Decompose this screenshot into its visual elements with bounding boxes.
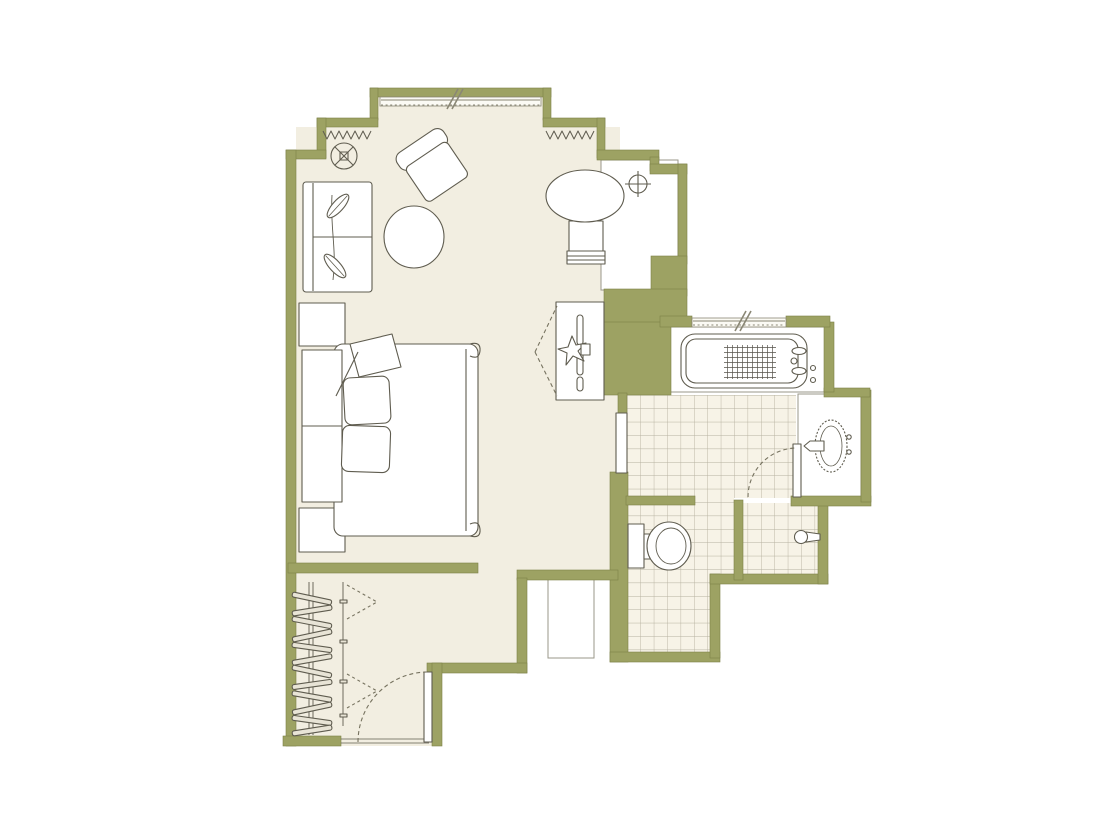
wall: [861, 390, 871, 502]
door-leaf: [793, 444, 801, 497]
wall: [517, 570, 618, 580]
tv-icon: [577, 315, 583, 345]
wall: [734, 500, 743, 580]
wall: [660, 316, 692, 327]
tub-handle-icon: [792, 368, 806, 375]
tv-icon: [577, 377, 583, 391]
wall: [370, 88, 378, 120]
wall: [604, 322, 671, 395]
wall: [432, 663, 442, 746]
floor-plan: [0, 0, 1120, 840]
wall: [543, 118, 605, 127]
wall: [286, 150, 296, 746]
wall: [626, 496, 695, 505]
wall: [710, 574, 720, 658]
nightstand: [299, 303, 345, 346]
bathroom-door-leaf: [616, 413, 627, 473]
bathtub: [681, 334, 816, 388]
wall: [824, 322, 834, 392]
toilet: [628, 522, 691, 570]
pillow: [343, 376, 391, 425]
wall: [818, 498, 828, 584]
wall: [618, 393, 627, 415]
wall: [791, 496, 871, 506]
wall: [786, 316, 830, 327]
wall: [610, 472, 628, 662]
faucet-knob-icon: [847, 435, 851, 439]
niche-hall-closet: [548, 578, 594, 658]
wall: [283, 736, 341, 746]
tub-spout-icon: [791, 358, 797, 364]
tile-main-bath: [627, 395, 796, 498]
wall: [288, 563, 478, 573]
wall: [610, 652, 720, 662]
wall: [543, 88, 551, 120]
faucet-knob-icon: [847, 450, 851, 454]
bathroom-tiles: [626, 395, 818, 654]
pillow: [341, 425, 391, 473]
ottoman: [384, 206, 444, 268]
wall: [678, 164, 687, 264]
wall: [710, 574, 828, 584]
tub-handle-icon: [792, 348, 806, 355]
wall: [517, 578, 527, 673]
tub-knob-icon: [811, 378, 816, 383]
sofa: [303, 182, 372, 292]
door-leaf: [424, 672, 432, 742]
tub-knob-icon: [811, 366, 816, 371]
tub-antislip: [724, 345, 776, 379]
